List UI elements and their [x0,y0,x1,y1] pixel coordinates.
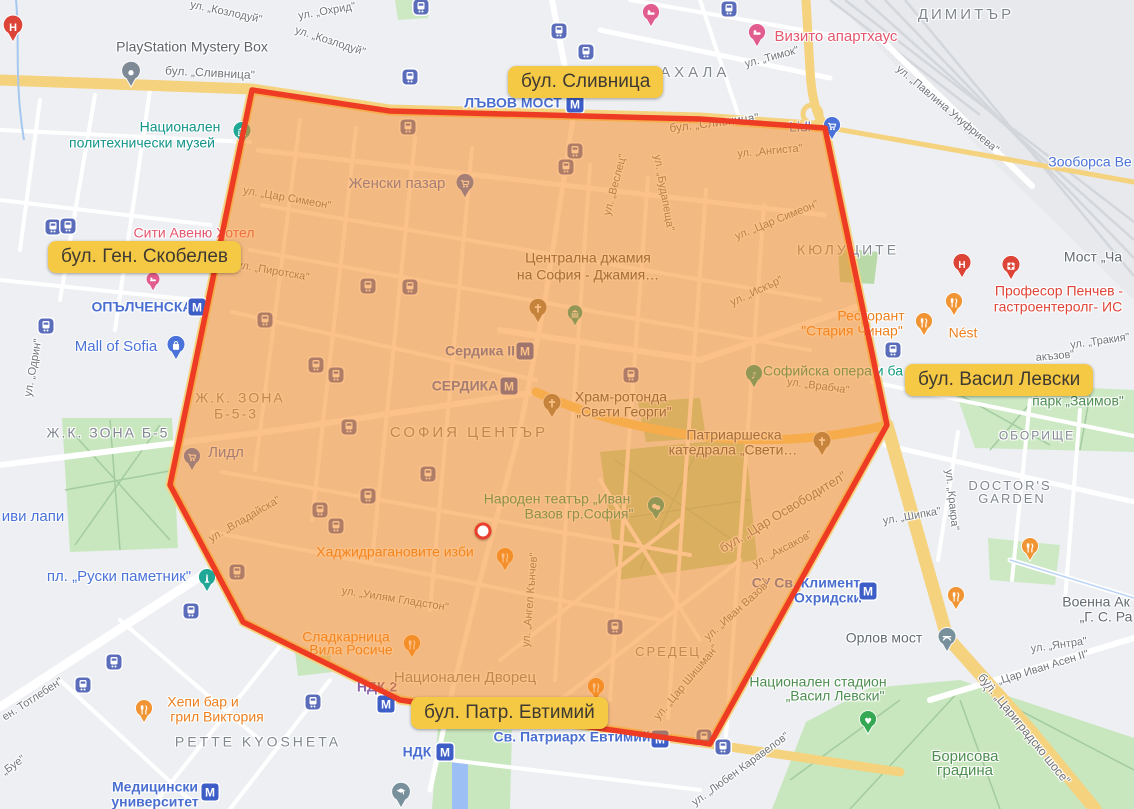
annotation-layer: бул. Сливница бул. Ген. Скобелев бул. Ва… [0,0,1134,809]
annotation-bul-gen-skobelev[interactable]: бул. Ген. Скобелев [48,241,241,273]
annotation-bul-patr-evtimiy[interactable]: бул. Патр. Евтимий [411,697,608,729]
annotation-bul-slivnitsa[interactable]: бул. Сливница [508,66,663,98]
annotation-bul-vasil-levski[interactable]: бул. Васил Левски [905,364,1093,396]
map-canvas[interactable]: H♪H♥ МАХАЛАДИМИТЪРКЮЛУЦИТЕЖ.К. ЗОНА Б-5Ж… [0,0,1134,809]
center-marker-dot[interactable] [475,523,492,540]
